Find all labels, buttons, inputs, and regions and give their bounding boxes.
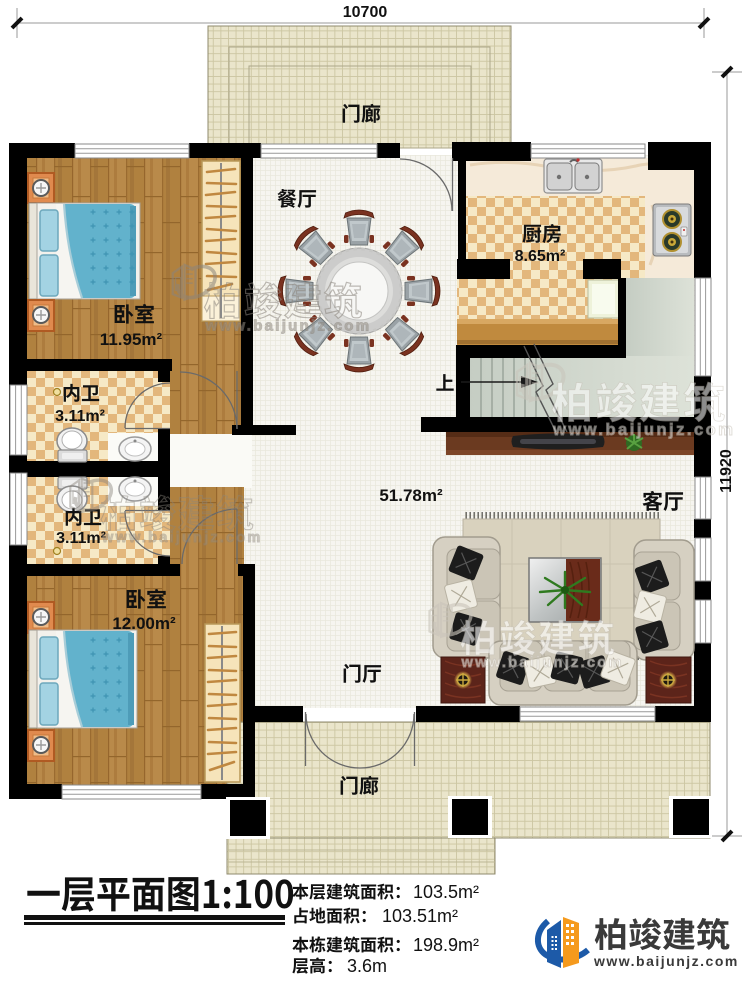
svg-text:103.5m²: 103.5m² <box>413 882 479 902</box>
svg-text:51.78m²: 51.78m² <box>379 486 443 505</box>
svg-text:103.51m²: 103.51m² <box>382 906 458 926</box>
svg-text:3.6m: 3.6m <box>347 956 387 976</box>
svg-text:11920: 11920 <box>718 449 735 493</box>
svg-text:8.65m²: 8.65m² <box>515 248 566 265</box>
svg-text:www.baijunjz.com: www.baijunjz.com <box>593 953 739 969</box>
svg-text:10700: 10700 <box>343 4 388 21</box>
svg-text:198.9m²: 198.9m² <box>413 935 479 955</box>
svg-text:3.11m²: 3.11m² <box>55 408 105 425</box>
svg-text:12.00m²: 12.00m² <box>112 614 176 633</box>
svg-text:11.95m²: 11.95m² <box>100 330 163 349</box>
svg-text:3.11m²: 3.11m² <box>56 530 106 547</box>
